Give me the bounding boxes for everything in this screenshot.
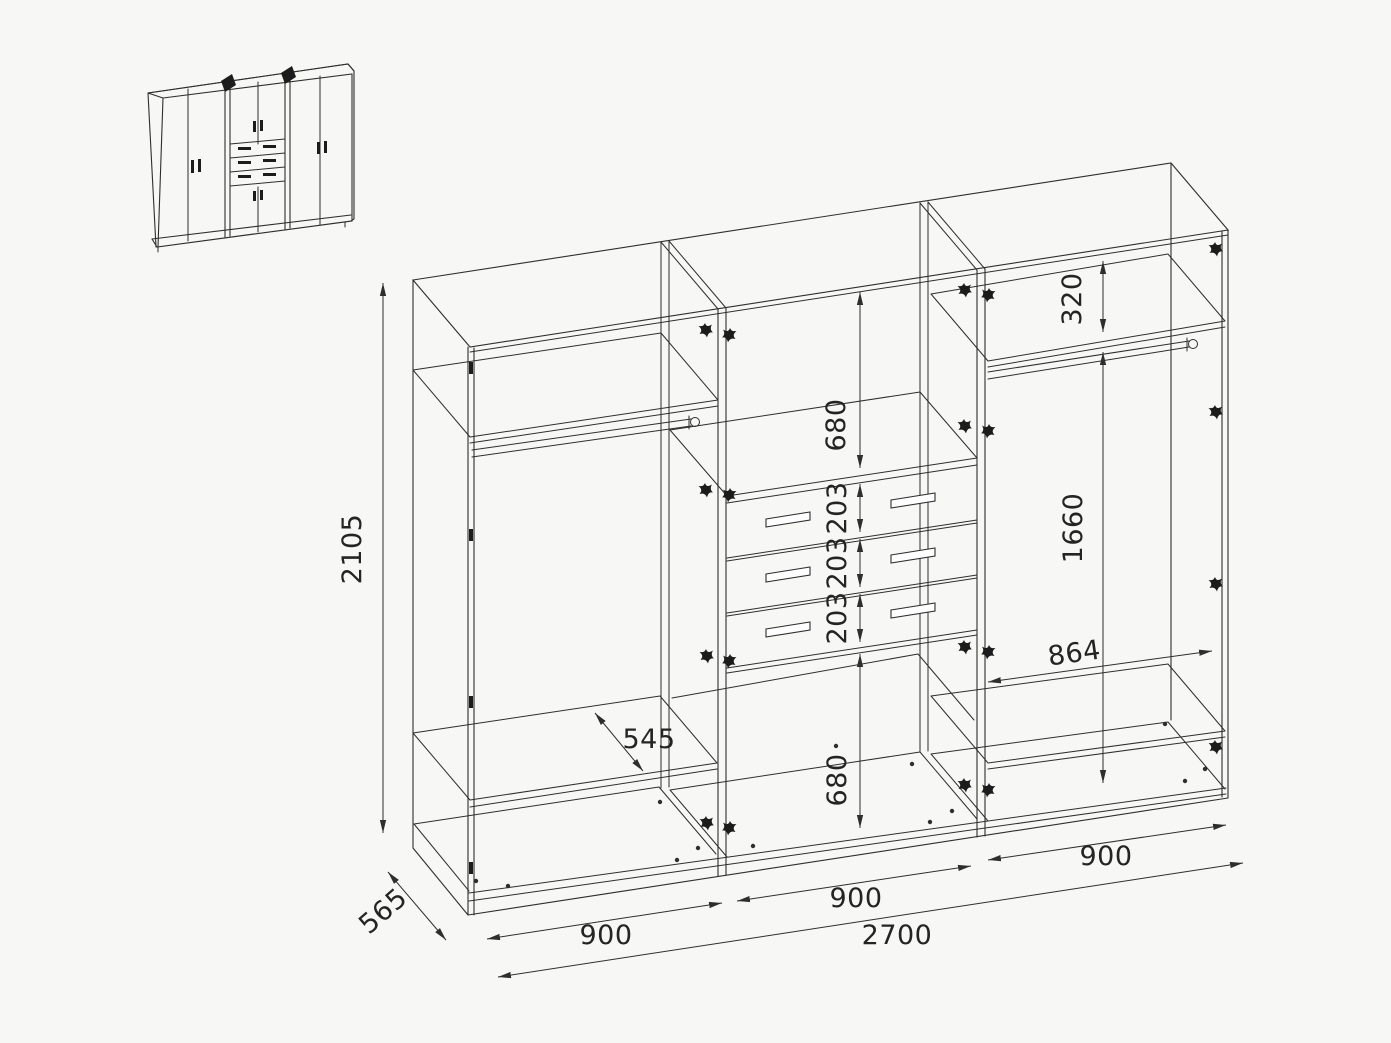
dimension-depth: 565	[353, 872, 446, 940]
dimension-middle-lower: 680	[822, 654, 860, 828]
dimension-height: 2105	[337, 283, 383, 833]
dim-label-middle-upper: 680	[821, 398, 852, 451]
thumbnail-front-view	[148, 64, 354, 252]
dim-label-shelf-depth: 545	[622, 724, 675, 755]
dimension-right-hanging: 1660	[1058, 352, 1103, 783]
wardrobe-technical-drawing: 2105 565 900 900 900 2700 545 680 203 20…	[0, 0, 1391, 1043]
left-bay-interior	[413, 333, 718, 891]
diagram-canvas: 2105 565 900 900 900 2700 545 680 203 20…	[0, 0, 1391, 1043]
dimension-bays: 900 900 900	[487, 825, 1226, 951]
dimension-drawers: 203 203 203	[822, 481, 860, 644]
dim-label-bay-left: 900	[579, 920, 632, 951]
dimension-shelf-depth: 545	[595, 713, 676, 771]
dim-label-drawer-1: 203	[822, 481, 853, 534]
dim-label-right-top: 320	[1057, 272, 1088, 325]
dim-label-drawer-2: 203	[822, 536, 853, 589]
dim-label-bay-right: 900	[1079, 841, 1132, 872]
dimension-right-inner-width: 864	[988, 635, 1212, 682]
dim-label-total-width: 2700	[862, 920, 933, 951]
dim-label-middle-lower: 680	[822, 753, 853, 806]
dim-label-right-hanging: 1660	[1058, 493, 1089, 564]
main-carcass	[413, 163, 1228, 915]
dim-label-bay-middle: 900	[829, 883, 882, 914]
dim-label-height: 2105	[337, 514, 368, 585]
dim-label-drawer-3: 203	[822, 591, 853, 644]
dimension-middle-upper: 680	[821, 292, 860, 468]
